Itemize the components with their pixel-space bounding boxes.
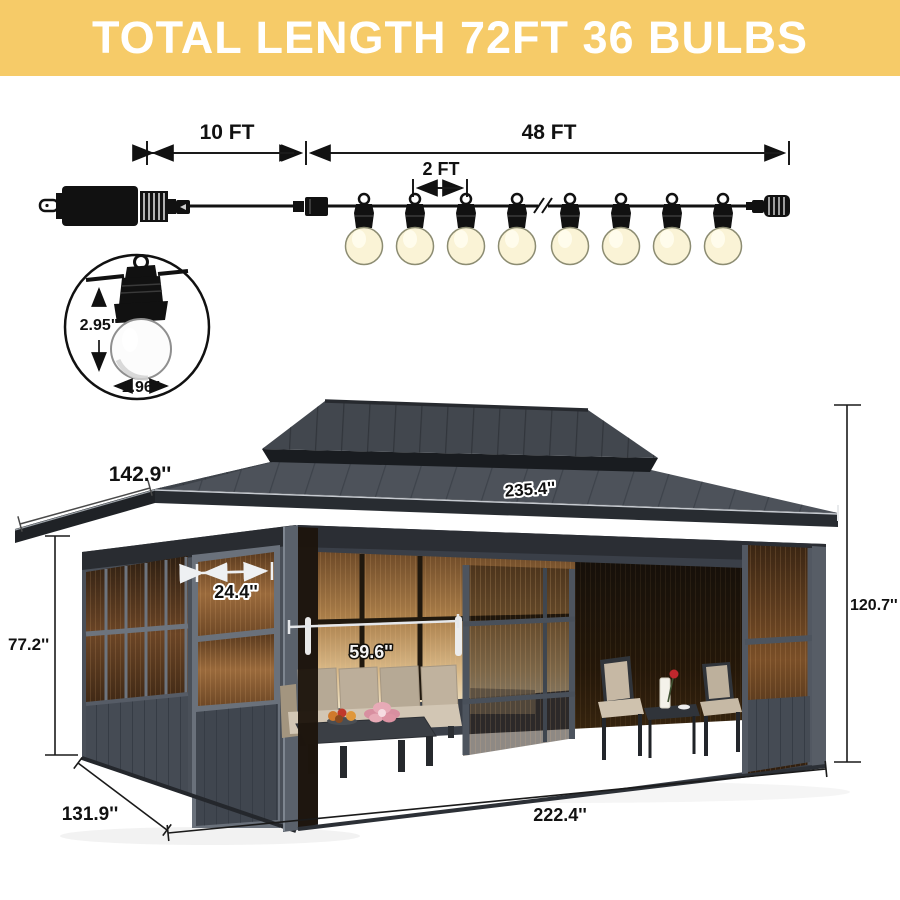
cup bbox=[678, 705, 690, 710]
roof-fascia-left bbox=[15, 489, 155, 543]
corner-post-right bbox=[812, 546, 826, 767]
bulb-height-label: 2.95" bbox=[80, 317, 119, 334]
bulb-spacing-label: 2 FT bbox=[422, 159, 459, 179]
gazebo-illustration: 142.9'' 235.4'' 24.4'' 59.6'' bbox=[8, 401, 898, 845]
door-handle-icon bbox=[305, 617, 311, 655]
base-width-label: 222.4'' bbox=[533, 805, 587, 825]
dim-total-height bbox=[834, 405, 861, 762]
door-opening-label: 59.6'' bbox=[349, 642, 393, 662]
power-plug-icon bbox=[40, 186, 190, 226]
base-depth-label: 131.9'' bbox=[62, 804, 119, 825]
bulb-detail-callout: 2.95" 1.96" bbox=[65, 255, 209, 399]
lit-length-label: 48 FT bbox=[522, 121, 577, 144]
end-connector-icon bbox=[746, 195, 790, 217]
bulb-diameter-dimension: 1.96" bbox=[115, 379, 167, 396]
product-infographic: TOTAL LENGTH 72FT 36 BULBS bbox=[0, 0, 900, 900]
wall-height-label: 77.2'' bbox=[8, 635, 49, 654]
corner-post-left bbox=[283, 525, 298, 832]
bulb-spacing-annotation bbox=[413, 179, 467, 197]
roof-front-label: 235.4'' bbox=[504, 478, 556, 500]
lead-length-label: 10 FT bbox=[200, 121, 255, 144]
length-annotations bbox=[147, 141, 789, 165]
diagram-canvas: 10 FT 48 FT 2 FT bbox=[0, 0, 900, 900]
roof-side-label: 142.9'' bbox=[109, 463, 172, 486]
total-height-label: 120.7'' bbox=[850, 597, 898, 614]
dim-wall-height bbox=[45, 536, 78, 755]
bulb-diameter-label: 1.96" bbox=[122, 379, 161, 396]
front-panel-closed-right bbox=[745, 545, 812, 775]
candle bbox=[660, 678, 670, 708]
string-light-diagram: 10 FT 48 FT 2 FT bbox=[40, 121, 790, 265]
front-door-closed-left bbox=[298, 527, 318, 830]
door-panel-label: 24.4'' bbox=[214, 582, 258, 602]
inline-connector-icon bbox=[293, 197, 328, 216]
sliding-door-stack bbox=[455, 565, 575, 756]
